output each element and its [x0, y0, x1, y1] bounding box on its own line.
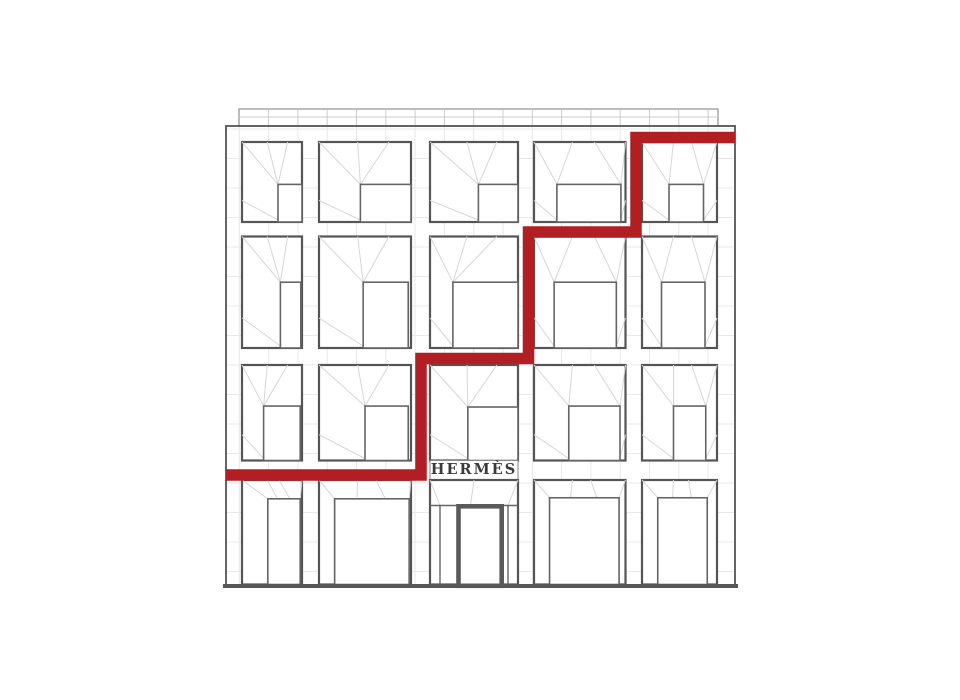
hermes-facade-illustration: HERMÈS — [0, 0, 960, 700]
parapet — [239, 109, 718, 126]
window-r1-c3 — [430, 142, 518, 222]
window-r3-c4 — [534, 365, 626, 461]
window-r1-c5 — [642, 142, 717, 222]
window-r2-c2 — [319, 237, 411, 349]
window-r3-c5 — [642, 365, 717, 461]
window-r3-c2 — [319, 365, 411, 461]
window-r1-c1 — [242, 142, 302, 222]
window-r3-c1 — [242, 365, 302, 461]
window-r4-c4 — [534, 480, 626, 585]
facade-drawing — [0, 0, 960, 700]
entrance-door — [430, 480, 518, 586]
window-r2-c4 — [534, 237, 626, 349]
window-r4-c2 — [319, 480, 411, 585]
window-r2-c3 — [430, 237, 518, 349]
window-r2-c5 — [642, 237, 717, 349]
window-r2-c1 — [242, 237, 302, 349]
window-r3-c3 — [430, 365, 518, 461]
window-r1-c2 — [319, 142, 411, 222]
window-r1-c4 — [534, 142, 626, 222]
door-frame — [459, 506, 502, 586]
window-r4-c5 — [642, 480, 717, 585]
hermes-sign-text: HERMÈS — [430, 459, 518, 480]
window-r4-c1 — [242, 480, 302, 585]
